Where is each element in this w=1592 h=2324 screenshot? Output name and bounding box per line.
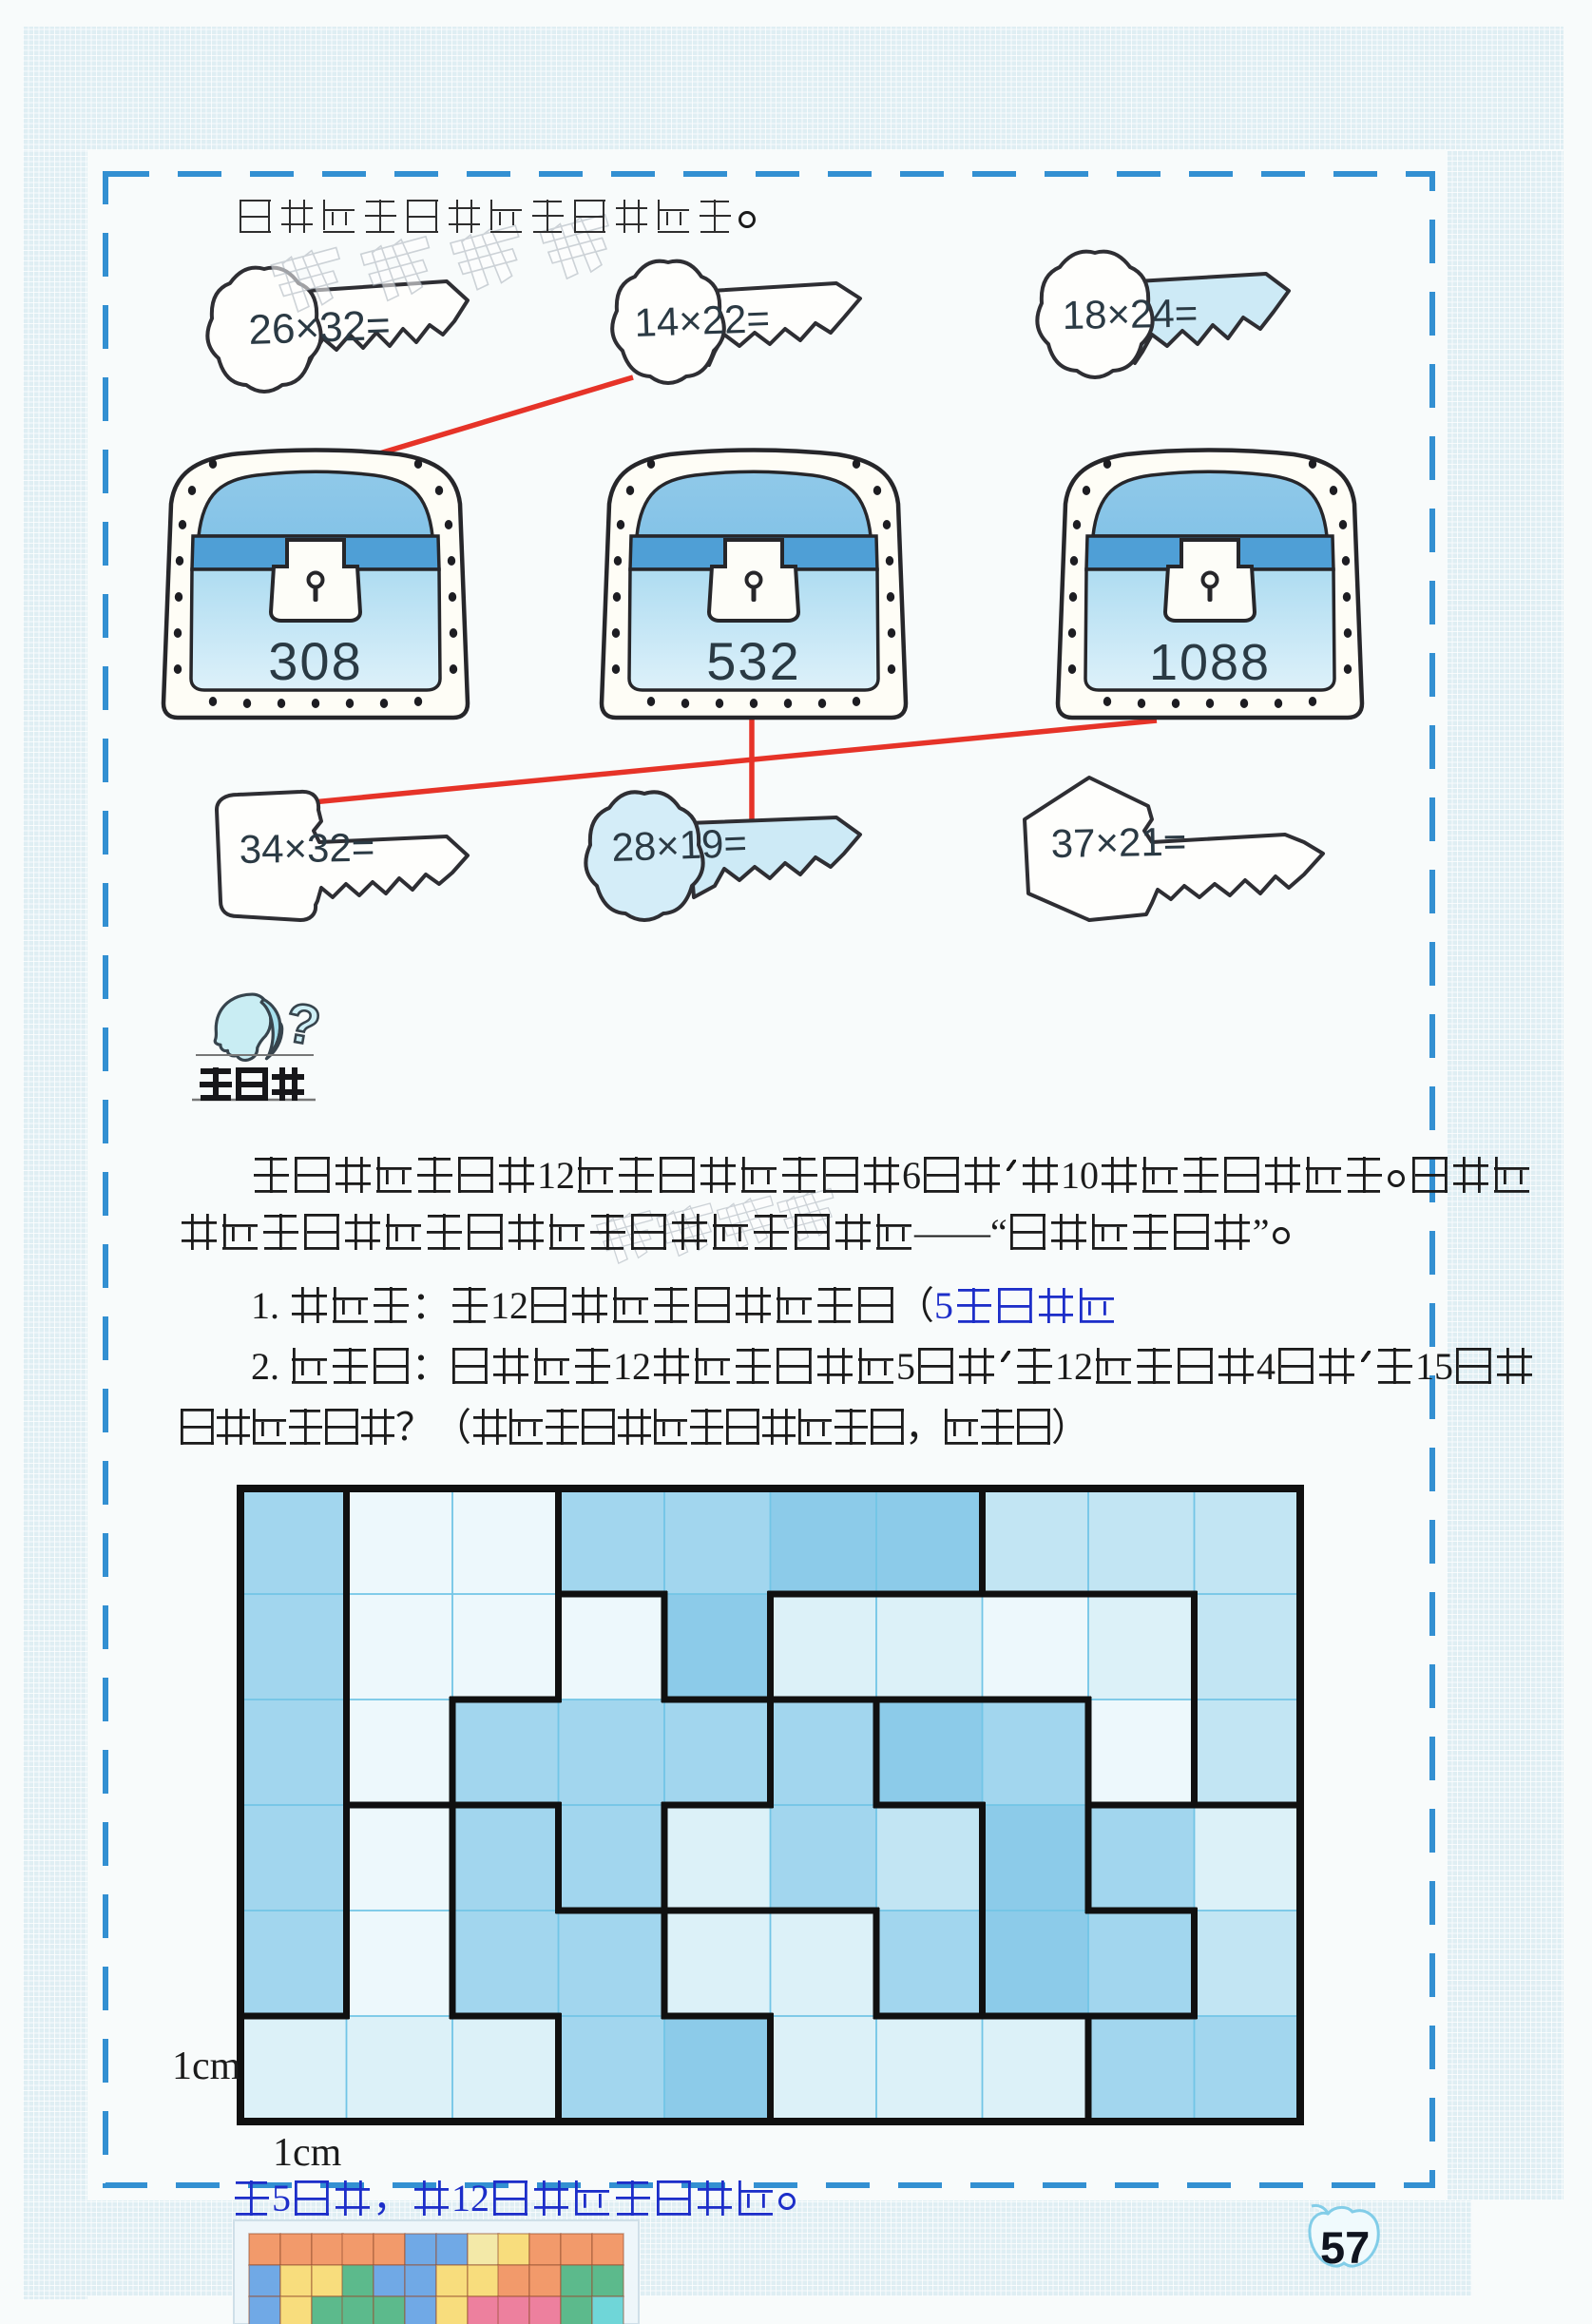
svg-text:532: 532: [706, 631, 800, 691]
svg-text:26×32=: 26×32=: [248, 302, 392, 354]
svg-text:?: ?: [281, 991, 325, 1058]
svg-text:34×32=: 34×32=: [239, 825, 374, 872]
svg-text:1088: 1088: [1149, 634, 1271, 691]
svg-text:18×24=: 18×24=: [1062, 291, 1198, 337]
svg-text:37×21=: 37×21=: [1050, 819, 1186, 866]
svg-text:308: 308: [268, 631, 362, 691]
svg-text:14×22=: 14×22=: [634, 296, 771, 345]
svg-text:28×19=: 28×19=: [611, 820, 748, 870]
